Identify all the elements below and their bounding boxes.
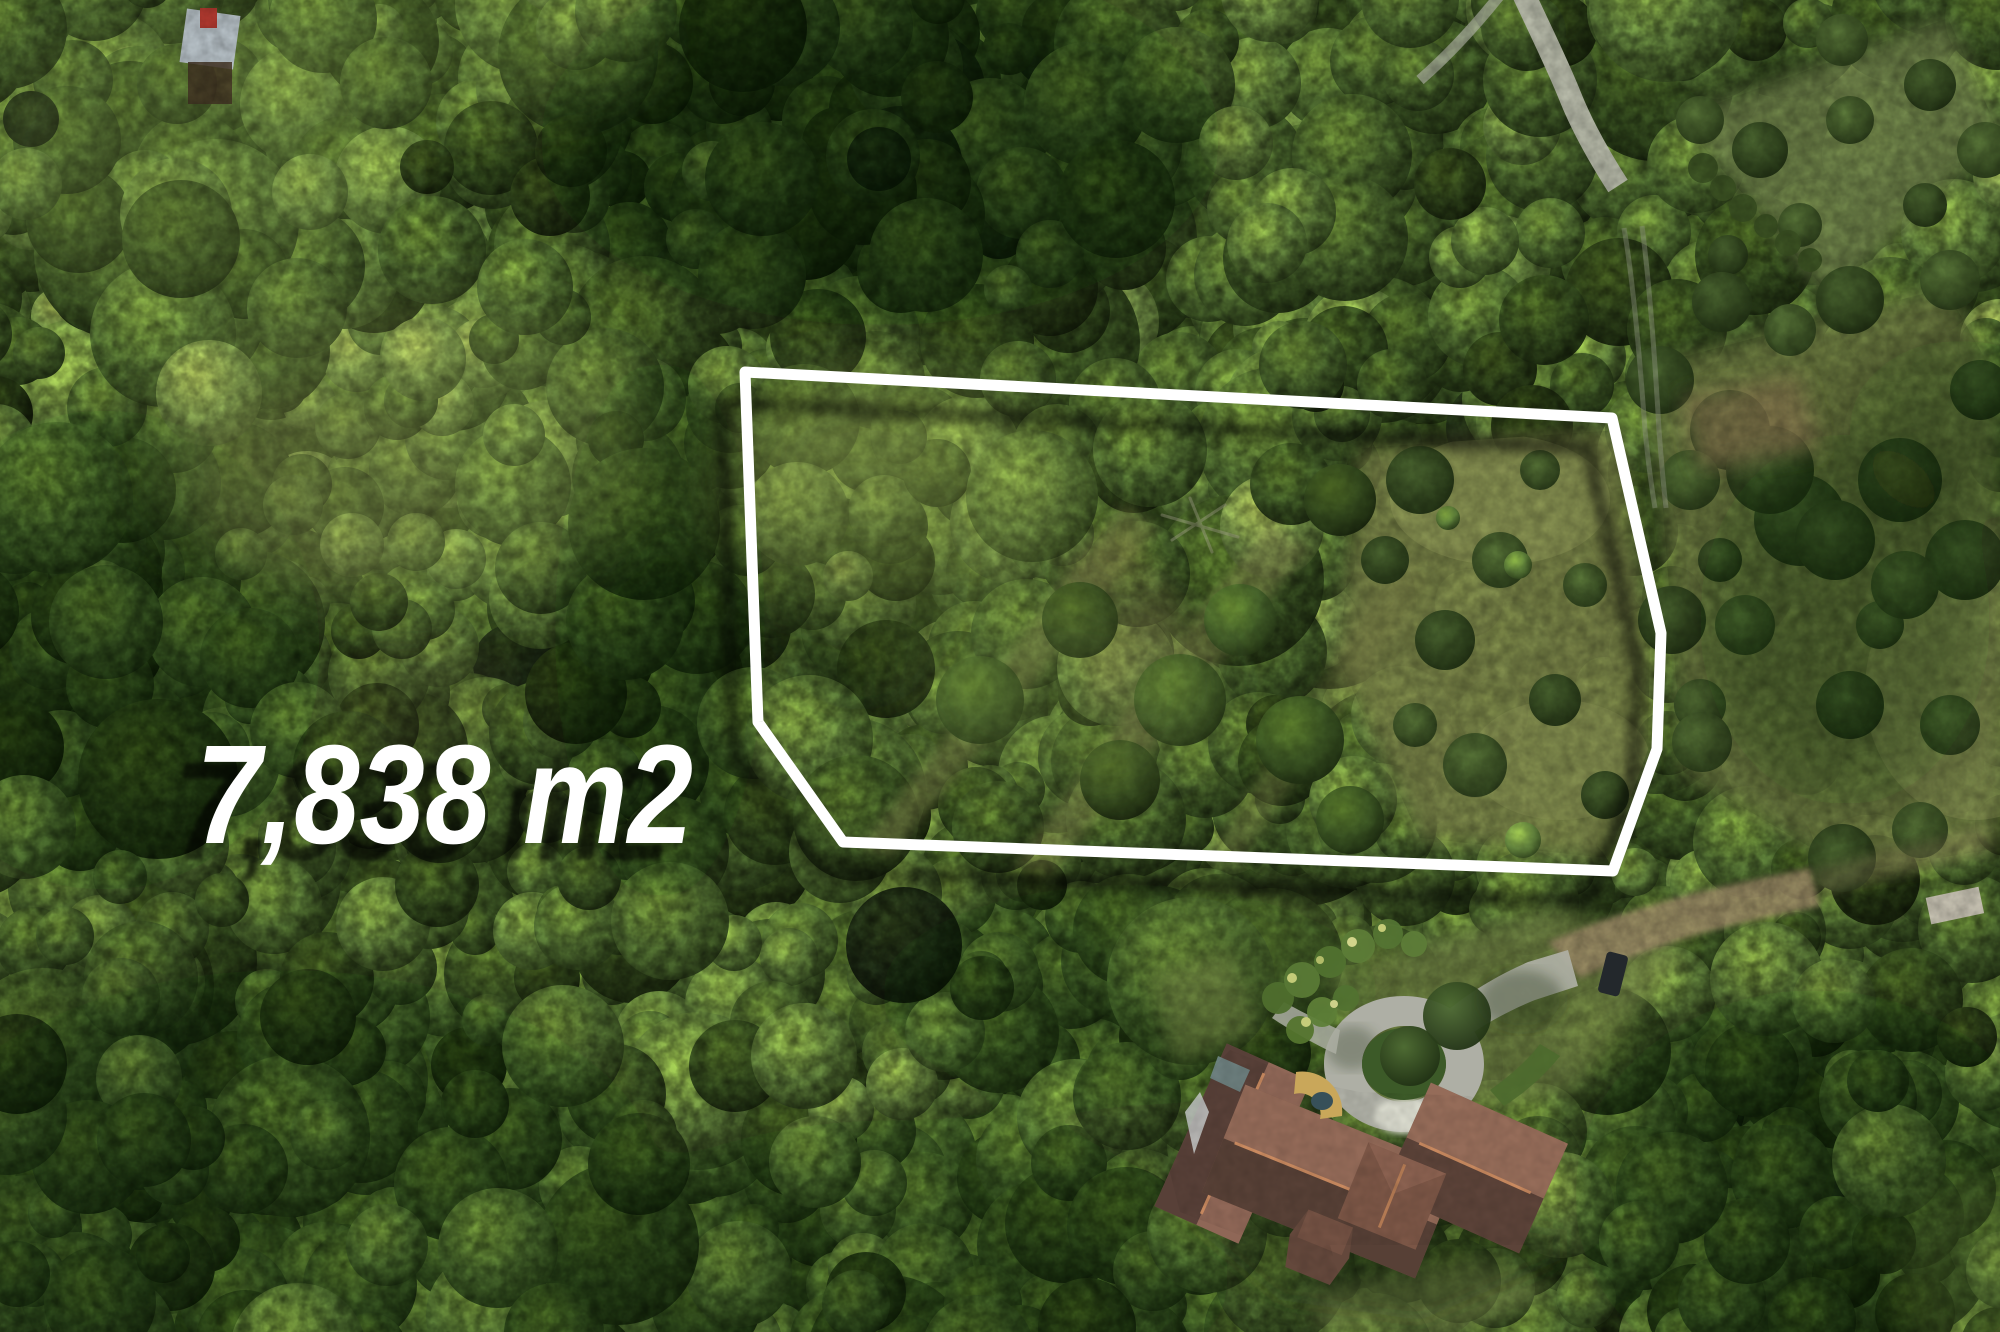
svg-text:7,838 m2: 7,838 m2 [196, 715, 693, 873]
